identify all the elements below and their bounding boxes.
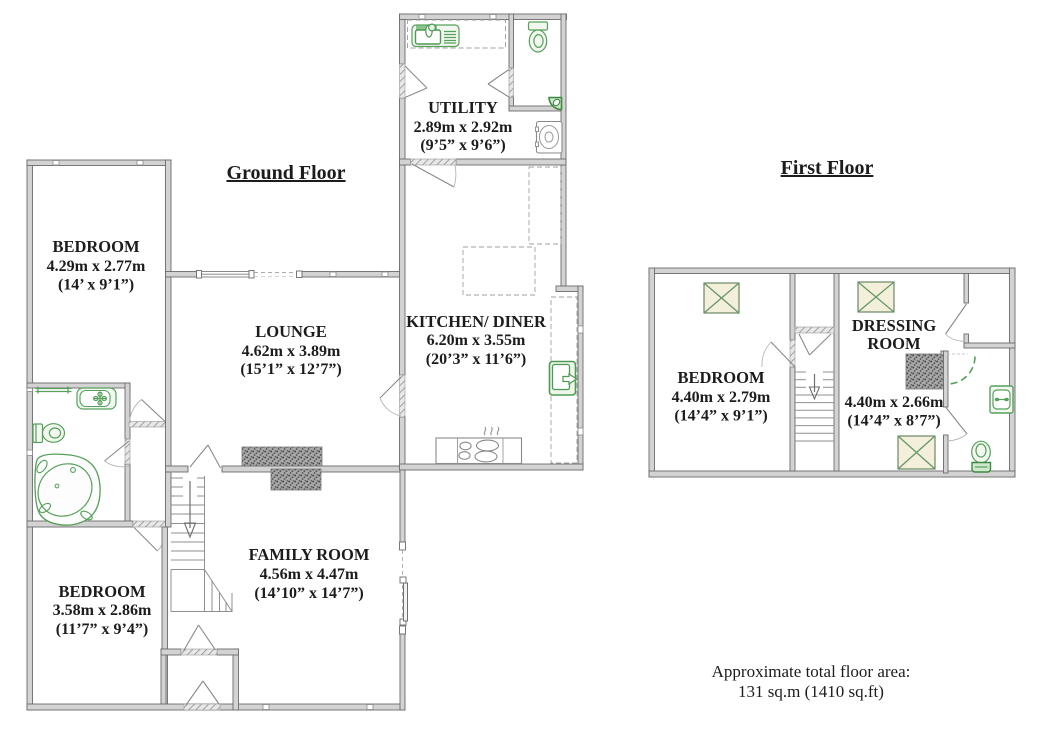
svg-text:(15’1” x 12’7”): (15’1” x 12’7”)	[240, 361, 341, 378]
svg-text:3.58m x 2.86m: 3.58m x 2.86m	[53, 602, 152, 619]
svg-text:Ground Floor: Ground Floor	[226, 162, 345, 184]
svg-text:BEDROOM: BEDROOM	[677, 368, 765, 387]
svg-text:BEDROOM: BEDROOM	[52, 237, 140, 256]
svg-text:DRESSING: DRESSING	[852, 316, 937, 335]
svg-text:131 sq.m (1410 sq.ft): 131 sq.m (1410 sq.ft)	[738, 682, 884, 701]
svg-text:(14’ x 9’1”): (14’ x 9’1”)	[58, 277, 134, 294]
svg-text:4.29m x 2.77m: 4.29m x 2.77m	[47, 258, 146, 275]
svg-text:LOUNGE: LOUNGE	[255, 322, 327, 341]
svg-text:(14’10” x 14’7”): (14’10” x 14’7”)	[254, 585, 363, 602]
svg-text:6.20m x 3.55m: 6.20m x 3.55m	[427, 332, 526, 349]
svg-text:(9’5” x 9’6”): (9’5” x 9’6”)	[420, 137, 505, 154]
svg-text:4.62m x 3.89m: 4.62m x 3.89m	[242, 343, 341, 360]
svg-text:(14’4” x 8’7”): (14’4” x 8’7”)	[847, 413, 940, 430]
svg-text:BEDROOM: BEDROOM	[58, 582, 146, 601]
svg-text:(11’7” x 9’4”): (11’7” x 9’4”)	[56, 621, 148, 638]
svg-text:FAMILY ROOM: FAMILY ROOM	[249, 545, 370, 564]
svg-text:Approximate total floor area:: Approximate total floor area:	[712, 662, 911, 681]
svg-text:4.40m x 2.66m: 4.40m x 2.66m	[845, 394, 944, 411]
svg-text:UTILITY: UTILITY	[428, 98, 498, 117]
svg-text:4.40m x 2.79m: 4.40m x 2.79m	[672, 389, 771, 406]
svg-text:(14’4” x 9’1”): (14’4” x 9’1”)	[674, 408, 767, 425]
svg-text:KITCHEN/ DINER: KITCHEN/ DINER	[406, 312, 547, 331]
svg-text:First Floor: First Floor	[781, 157, 874, 179]
svg-text:ROOM: ROOM	[867, 334, 921, 353]
svg-text:2.89m x 2.92m: 2.89m x 2.92m	[414, 119, 513, 136]
svg-text:4.56m x 4.47m: 4.56m x 4.47m	[260, 566, 359, 583]
svg-text:(20’3” x 11’6”): (20’3” x 11’6”)	[426, 351, 526, 368]
